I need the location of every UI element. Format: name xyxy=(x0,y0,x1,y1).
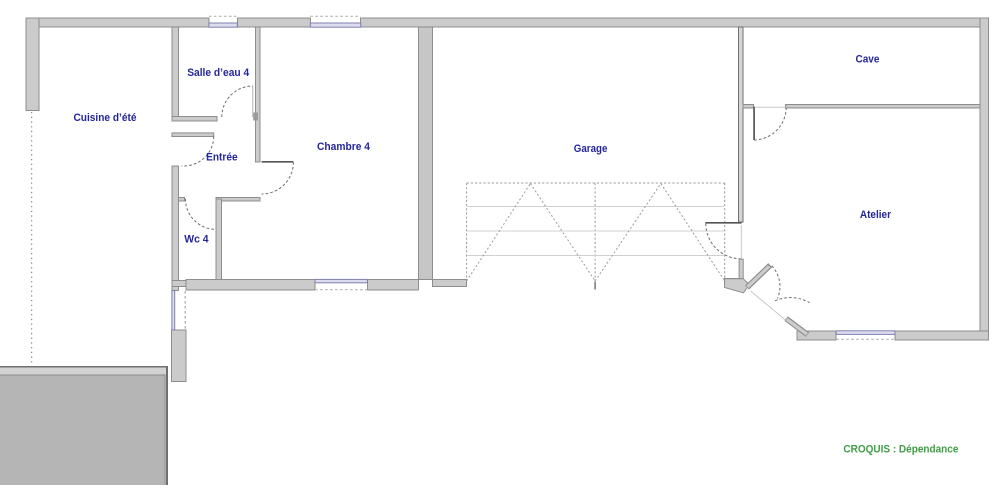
svg-text:Garage: Garage xyxy=(574,143,608,155)
svg-text:CROQUIS : Dépendance: CROQUIS : Dépendance xyxy=(843,444,958,456)
svg-text:Entrée: Entrée xyxy=(206,151,238,163)
svg-text:Salle d’eau 4: Salle d’eau 4 xyxy=(187,67,250,79)
svg-text:Cave: Cave xyxy=(856,53,880,65)
svg-text:Wc 4: Wc 4 xyxy=(184,234,209,246)
svg-text:Chambre 4: Chambre 4 xyxy=(317,141,371,153)
svg-text:Cuisine d’été: Cuisine d’été xyxy=(74,112,137,124)
svg-text:Atelier: Atelier xyxy=(860,209,892,221)
